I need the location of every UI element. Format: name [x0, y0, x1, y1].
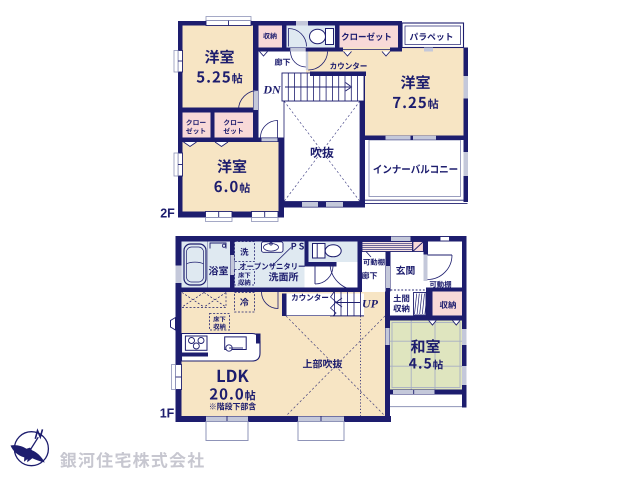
svg-text:2F: 2F: [160, 207, 175, 221]
svg-text:UP: UP: [362, 297, 379, 311]
svg-text:1F: 1F: [160, 407, 175, 421]
svg-text:DN: DN: [262, 83, 282, 97]
